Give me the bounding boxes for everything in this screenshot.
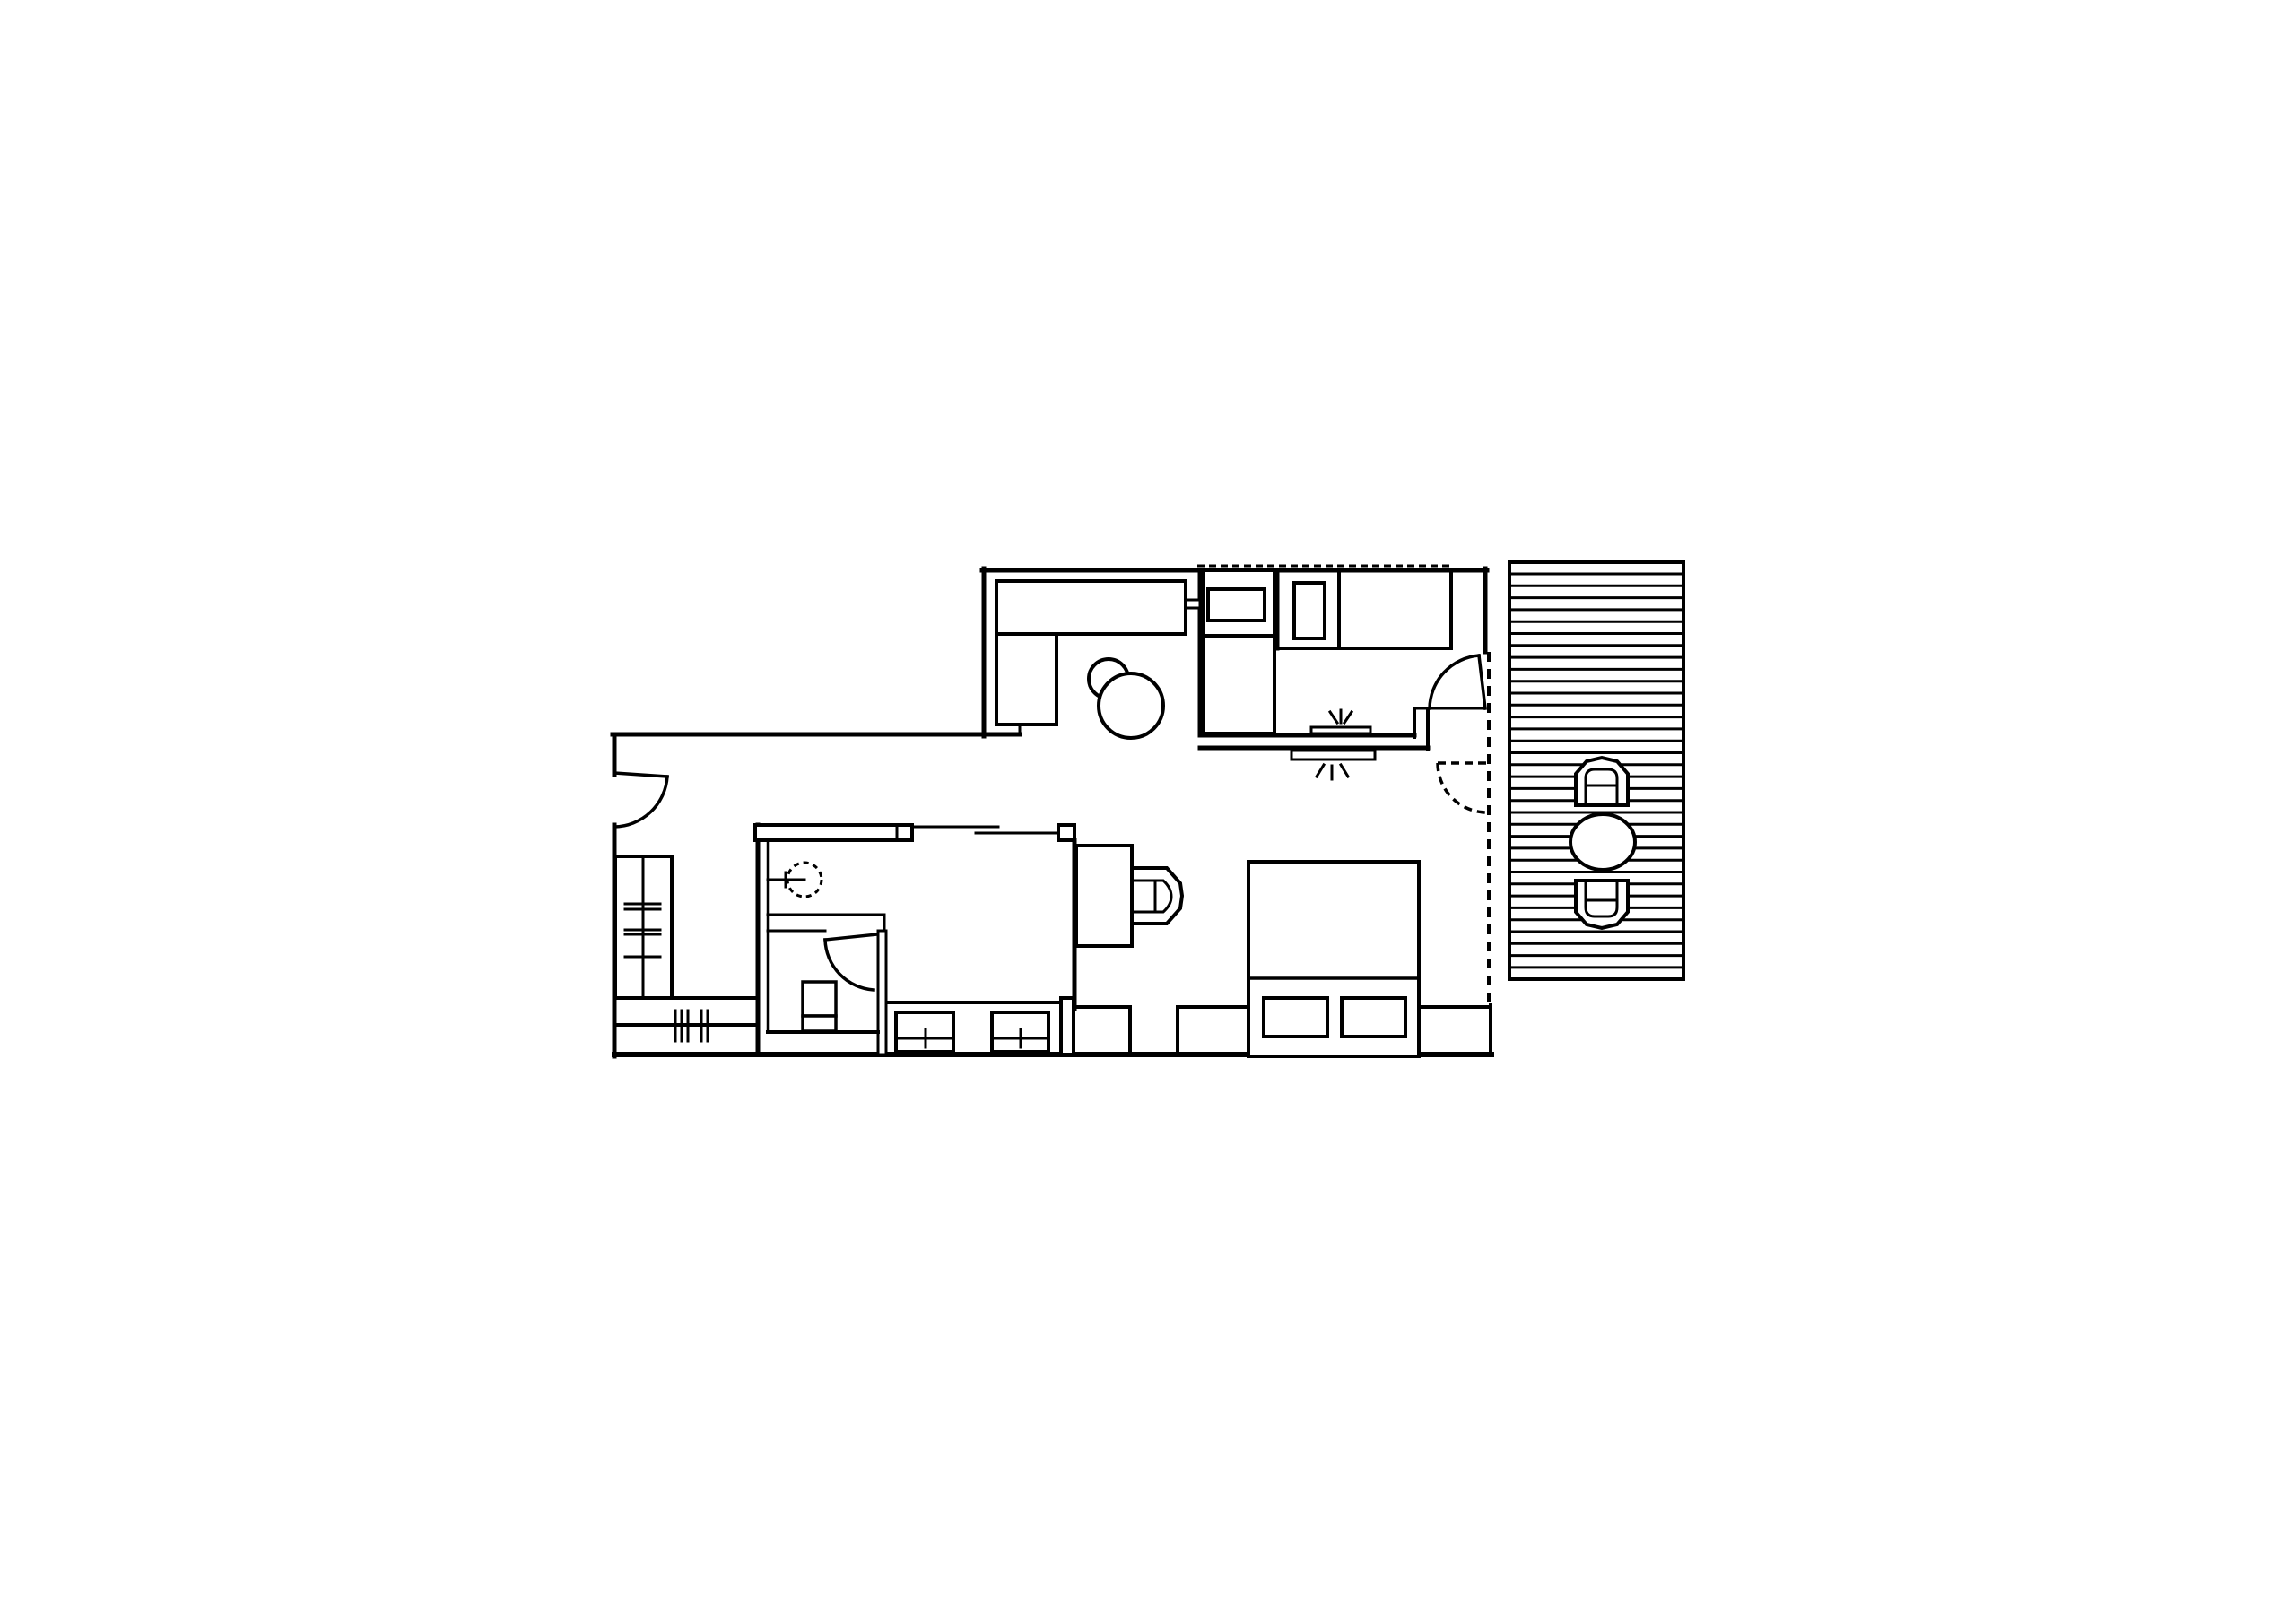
kitchen-sink [1294, 583, 1325, 638]
wall-light-upper [1311, 727, 1370, 733]
light-ray [1330, 712, 1337, 723]
light-ray [1344, 712, 1352, 723]
floor-plan-svg [0, 0, 2296, 1623]
kitchen-door-swing-arc [1430, 655, 1479, 708]
desk [1076, 846, 1132, 946]
wall-light-lower [1291, 751, 1375, 759]
wc-tank [803, 982, 836, 1016]
balcony-door-swing-arc-dashed [1438, 763, 1487, 812]
wall-wc-right [878, 931, 886, 1055]
desk-chair [1132, 868, 1182, 924]
pillow-right [1342, 998, 1405, 1037]
wc-door-leaf [825, 934, 877, 940]
light-ray [1341, 765, 1348, 777]
cooktop [1208, 589, 1265, 621]
balcony-chair-bottom [1576, 881, 1628, 928]
pillar-bottom [1061, 998, 1074, 1055]
pillar-top [1058, 825, 1074, 840]
kitchen-door-leaf [1479, 655, 1485, 708]
pillow-left [1264, 998, 1327, 1037]
kitchen-connector [1186, 600, 1200, 608]
wall-bathroom-top-band [755, 825, 912, 840]
entry-door-swing-arc [614, 777, 667, 827]
kitchen-counter-top [996, 581, 1186, 634]
wc-bowl [803, 1016, 836, 1031]
balcony-table [1570, 814, 1635, 870]
light-ray [1317, 765, 1324, 777]
balcony-chair-top [1576, 758, 1628, 805]
floor-plan-page [0, 0, 2296, 1623]
stool-large [1099, 673, 1163, 738]
entry-door-leaf [614, 773, 667, 777]
kitchen-counter-left [996, 634, 1057, 725]
